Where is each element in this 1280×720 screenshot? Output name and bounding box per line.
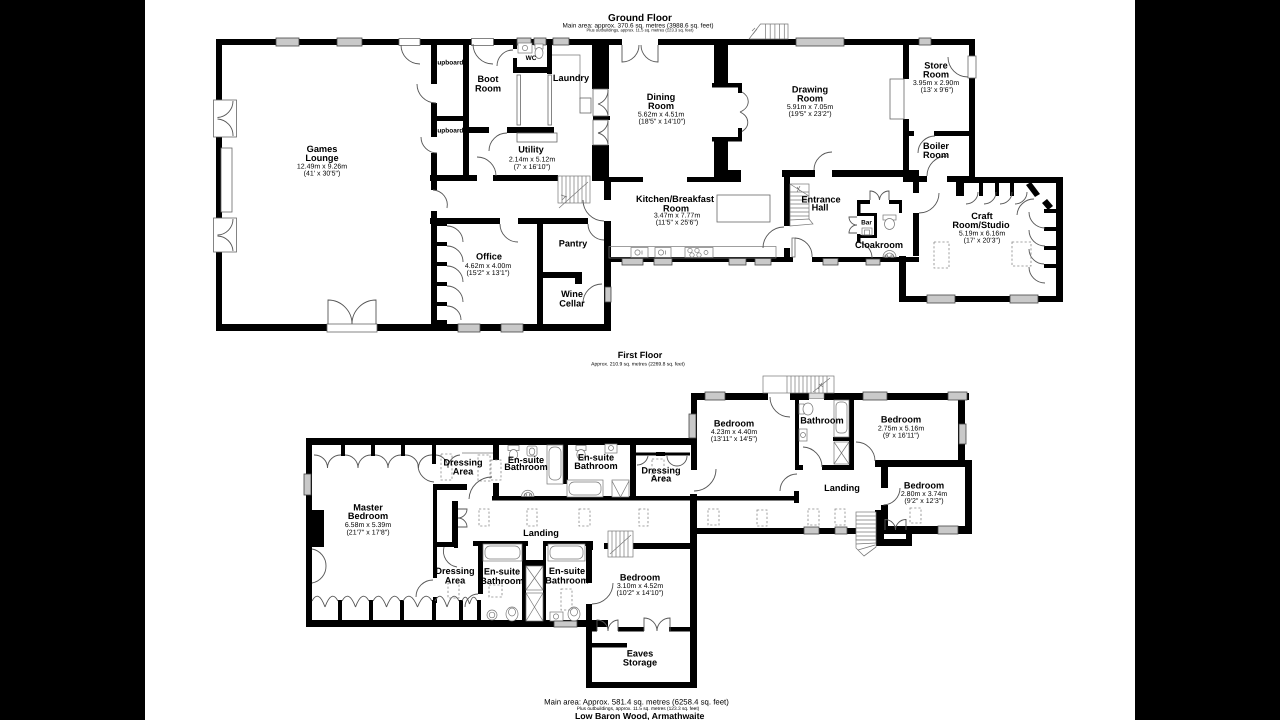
svg-text:Approx. 210.9 sq. metres (2269: Approx. 210.9 sq. metres (2269.8 sq. fee… <box>591 362 685 368</box>
svg-text:Bathroom: Bathroom <box>574 461 617 471</box>
svg-text:(41' x 30'5"): (41' x 30'5") <box>304 170 341 178</box>
svg-text:Landing: Landing <box>824 483 860 493</box>
svg-text:Bedroom: Bedroom <box>881 415 921 425</box>
svg-text:5.91m x 7.05m: 5.91m x 7.05m <box>787 104 833 111</box>
svg-text:Cloakroom: Cloakroom <box>855 240 903 250</box>
svg-text:Bathroom: Bathroom <box>800 416 843 426</box>
svg-text:Bar: Bar <box>861 220 872 227</box>
svg-text:3.10m x 4.52m: 3.10m x 4.52m <box>617 583 663 590</box>
svg-text:First Floor: First Floor <box>618 350 663 360</box>
svg-text:4.23m x 4.40m: 4.23m x 4.40m <box>711 429 757 436</box>
svg-text:Storage: Storage <box>623 658 657 668</box>
svg-text:Hall: Hall <box>812 203 829 213</box>
svg-text:2.14m x 5.12m: 2.14m x 5.12m <box>509 157 555 164</box>
svg-text:(9' x 16'11"): (9' x 16'11") <box>883 432 919 440</box>
svg-text:Wine: Wine <box>561 289 583 299</box>
svg-text:(10'2" x 14'10"): (10'2" x 14'10") <box>617 589 664 597</box>
svg-text:5.62m x 4.51m: 5.62m x 4.51m <box>638 112 684 119</box>
svg-text:Laundry: Laundry <box>553 73 590 83</box>
svg-text:Cellar: Cellar <box>559 299 585 309</box>
svg-text:(19'5" x 23'2"): (19'5" x 23'2") <box>788 110 831 118</box>
svg-text:Bathroom: Bathroom <box>504 462 547 472</box>
svg-text:5.19m x 6.16m: 5.19m x 6.16m <box>959 231 1005 238</box>
svg-text:Bathroom: Bathroom <box>545 576 588 586</box>
svg-text:(17' x 20'3"): (17' x 20'3") <box>964 237 1001 245</box>
svg-text:Pantry: Pantry <box>559 239 588 249</box>
svg-text:(7' x 16'10"): (7' x 16'10") <box>514 163 551 171</box>
svg-text:Utility: Utility <box>518 145 544 155</box>
svg-text:Main area: Approx. 581.4 sq. m: Main area: Approx. 581.4 sq. metres (625… <box>544 697 729 706</box>
svg-text:Room: Room <box>648 101 674 111</box>
svg-text:(11'5" x 25'6"): (11'5" x 25'6") <box>656 219 699 227</box>
svg-text:En-suite: En-suite <box>549 566 585 576</box>
svg-text:Bedroom: Bedroom <box>620 573 660 583</box>
svg-text:Area: Area <box>651 474 672 484</box>
svg-text:(15'2" x 13'1"): (15'2" x 13'1") <box>466 269 509 277</box>
svg-text:Room: Room <box>475 84 501 94</box>
svg-text:Plus outbuildings, approx. 11.: Plus outbuildings, approx. 11.5 sq. metr… <box>587 27 695 32</box>
svg-text:Bedroom: Bedroom <box>348 511 388 521</box>
svg-text:Cupboard: Cupboard <box>433 128 464 135</box>
svg-text:En-suite: En-suite <box>484 567 520 577</box>
svg-text:2.75m x 5.16m: 2.75m x 5.16m <box>878 426 924 433</box>
svg-text:Kitchen/Breakfast: Kitchen/Breakfast <box>636 194 714 204</box>
svg-text:Landing: Landing <box>523 528 559 538</box>
svg-text:Room: Room <box>923 70 949 80</box>
svg-text:Cupboard: Cupboard <box>433 60 464 67</box>
svg-text:Room/Studio: Room/Studio <box>952 220 1010 230</box>
svg-text:Bathroom: Bathroom <box>480 576 523 586</box>
svg-text:Office: Office <box>476 252 502 262</box>
svg-text:Dressing: Dressing <box>435 566 474 576</box>
svg-text:Room: Room <box>797 94 823 104</box>
svg-text:3.47m x 7.77m: 3.47m x 7.77m <box>654 213 700 220</box>
svg-text:6.58m x 5.39m: 6.58m x 5.39m <box>345 522 391 529</box>
svg-text:12.49m x 9.26m: 12.49m x 9.26m <box>297 164 347 171</box>
svg-text:Room: Room <box>923 150 949 160</box>
svg-text:Bedroom: Bedroom <box>904 481 944 491</box>
svg-text:2.80m x 3.74m: 2.80m x 3.74m <box>901 491 947 498</box>
svg-text:Area: Area <box>453 467 474 477</box>
svg-text:Area: Area <box>445 576 466 586</box>
svg-text:(9'2" x 12'3"): (9'2" x 12'3") <box>904 497 943 505</box>
svg-text:(21'7" x 17'8"): (21'7" x 17'8") <box>346 529 389 537</box>
svg-text:Boot: Boot <box>478 74 499 84</box>
svg-text:WC: WC <box>526 55 537 62</box>
svg-text:4.62m x 4.00m: 4.62m x 4.00m <box>465 263 511 270</box>
svg-text:Lounge: Lounge <box>305 153 338 163</box>
svg-text:3.95m x 2.90m: 3.95m x 2.90m <box>913 80 959 87</box>
svg-text:Low Baron Wood, Armathwaite: Low Baron Wood, Armathwaite <box>575 711 705 720</box>
svg-text:(13'11" x 14'5"): (13'11" x 14'5") <box>711 435 757 443</box>
svg-text:(18'5" x 14'10"): (18'5" x 14'10") <box>639 118 686 126</box>
svg-text:Bedroom: Bedroom <box>714 419 754 429</box>
svg-text:(13' x 9'6"): (13' x 9'6") <box>921 86 954 94</box>
